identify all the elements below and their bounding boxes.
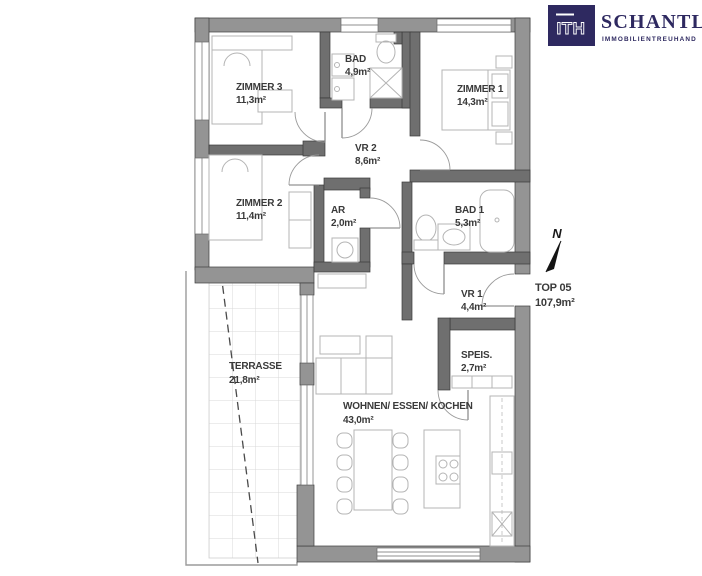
terrasse-label: TERRASSE bbox=[229, 361, 282, 372]
zimmer3-label: ZIMMER 3 bbox=[236, 82, 283, 93]
dining-group bbox=[337, 430, 408, 514]
zimmer1-area: 14,3m² bbox=[457, 97, 488, 108]
wohnen-label: WOHNEN/ ESSEN/ KOCHEN bbox=[343, 401, 473, 412]
zimmer1-label: ZIMMER 1 bbox=[457, 84, 504, 95]
chair-icon bbox=[337, 477, 352, 492]
window bbox=[377, 548, 480, 560]
terrasse-area: 21,8m² bbox=[229, 375, 260, 386]
kitchen-island-group bbox=[424, 430, 460, 508]
sideboard bbox=[318, 274, 366, 288]
ar-furniture bbox=[332, 238, 358, 262]
north-arrow-icon: N bbox=[546, 226, 562, 272]
toilet-icon bbox=[416, 215, 436, 241]
door-arc bbox=[289, 155, 319, 185]
chair-icon bbox=[393, 499, 408, 514]
chair-icon bbox=[337, 455, 352, 470]
vr1-label: VR 1 bbox=[461, 289, 483, 300]
speis-furniture bbox=[452, 376, 512, 388]
vr2-area: 8,6m² bbox=[355, 156, 381, 167]
terrace-tiles bbox=[209, 283, 300, 558]
ar-area: 2,0m² bbox=[331, 218, 357, 229]
door-arc bbox=[482, 274, 514, 306]
kitchen-counter-group bbox=[490, 396, 514, 546]
chair-icon bbox=[393, 433, 408, 448]
coffee-table bbox=[320, 336, 360, 354]
bad1-area: 5,3m² bbox=[455, 218, 481, 229]
floor-plan-canvas: ZIMMER 3 11,3m² BAD 4,9m² ZIMMER 1 14,3m… bbox=[0, 0, 702, 576]
zimmer3-furniture bbox=[212, 36, 292, 124]
unit-label: TOP 05 bbox=[535, 282, 571, 294]
logo-subtitle: IMMOBILIENTREUHAND bbox=[602, 36, 697, 43]
window bbox=[437, 19, 511, 32]
bathtub-icon bbox=[480, 190, 514, 252]
chair-icon bbox=[393, 477, 408, 492]
door-arc bbox=[295, 112, 325, 142]
speis-label: SPEIS. bbox=[461, 350, 492, 361]
zimmer3-area: 11,3m² bbox=[236, 95, 267, 106]
window bbox=[301, 385, 313, 485]
logo-mark-overline bbox=[556, 14, 574, 16]
zimmer2-area: 11,4m² bbox=[236, 211, 267, 222]
window bbox=[341, 18, 378, 32]
window bbox=[195, 42, 209, 120]
door-arc bbox=[342, 108, 372, 138]
unit-area: 107,9m² bbox=[535, 297, 575, 309]
logo-name: SCHANTL bbox=[601, 11, 702, 33]
door-arc bbox=[370, 198, 400, 228]
sofa-icon bbox=[316, 358, 392, 394]
bad-area: 4,9m² bbox=[345, 67, 371, 78]
window bbox=[195, 158, 209, 234]
chair-icon bbox=[337, 433, 352, 448]
logo: ITH SCHANTL IMMOBILIENTREUHAND bbox=[548, 5, 702, 46]
sofa-group bbox=[316, 336, 392, 394]
bad1-label: BAD 1 bbox=[455, 205, 485, 216]
bad-label: BAD bbox=[345, 54, 366, 65]
shelf bbox=[452, 376, 512, 388]
nightstand bbox=[496, 56, 512, 68]
ar-label: AR bbox=[331, 205, 346, 216]
wohnen-area: 43,0m² bbox=[343, 415, 374, 426]
zimmer2-label: ZIMMER 2 bbox=[236, 198, 283, 209]
window bbox=[301, 295, 313, 363]
kitchen-island-icon bbox=[424, 430, 460, 508]
dining-table-icon bbox=[354, 430, 392, 510]
floorplan-page: ZIMMER 3 11,3m² BAD 4,9m² ZIMMER 1 14,3m… bbox=[0, 0, 702, 576]
logo-mark: ITH bbox=[557, 19, 586, 38]
vr1-area: 4,4m² bbox=[461, 302, 487, 313]
chair-icon bbox=[337, 499, 352, 514]
speis-area: 2,7m² bbox=[461, 363, 487, 374]
washer-icon bbox=[332, 78, 354, 100]
nightstand bbox=[496, 132, 512, 144]
door-arc bbox=[420, 140, 450, 170]
terrace bbox=[186, 271, 300, 565]
chair-icon bbox=[393, 455, 408, 470]
shelf bbox=[212, 36, 292, 50]
vr2-label: VR 2 bbox=[355, 143, 377, 154]
pillow bbox=[492, 102, 508, 126]
north-label: N bbox=[552, 226, 562, 241]
door-arc bbox=[414, 264, 444, 294]
